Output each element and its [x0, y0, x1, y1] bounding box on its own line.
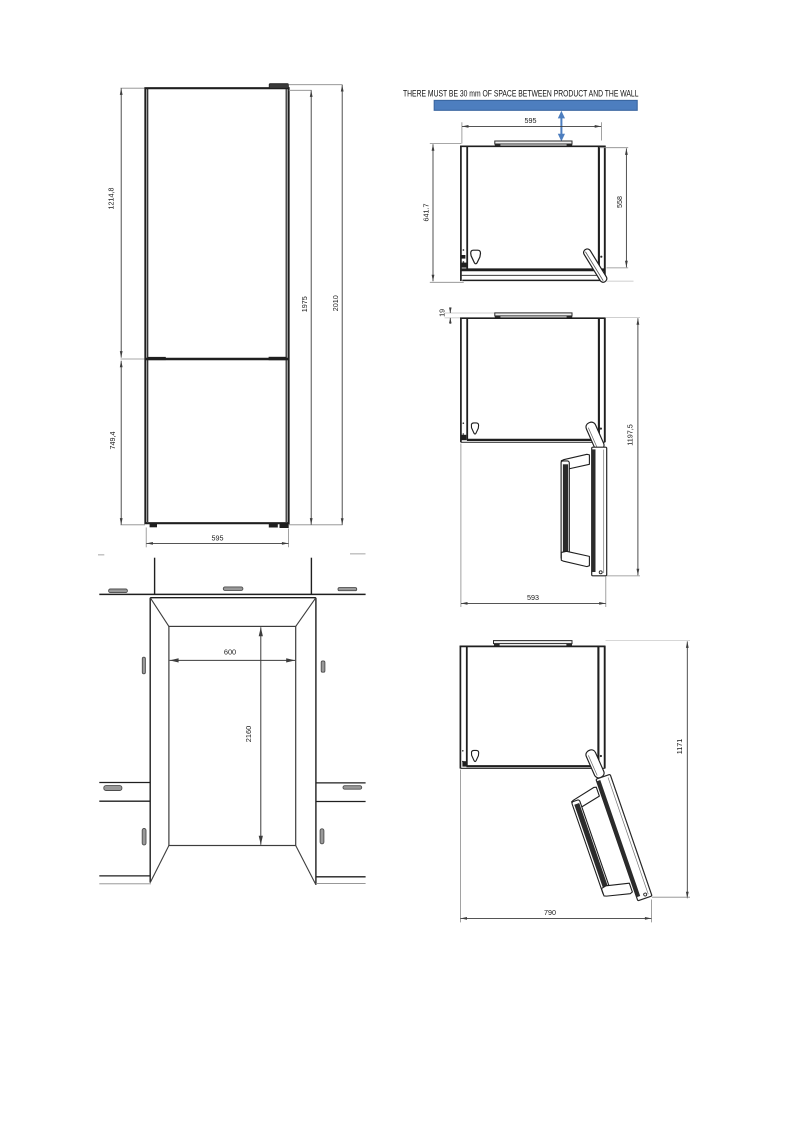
svg-text:593: 593 [527, 593, 539, 602]
svg-text:1214,8: 1214,8 [107, 188, 116, 210]
svg-text:1171: 1171 [675, 739, 684, 754]
svg-text:1197,5: 1197,5 [626, 424, 635, 445]
svg-text:19: 19 [438, 309, 447, 317]
svg-text:2010: 2010 [331, 295, 340, 311]
svg-text:595: 595 [525, 116, 537, 125]
svg-text:790: 790 [544, 908, 556, 917]
svg-text:595: 595 [212, 533, 224, 542]
svg-text:THERE MUST BE 30 mm OF SPACE B: THERE MUST BE 30 mm OF SPACE BETWEEN PRO… [403, 88, 639, 98]
svg-text:2160: 2160 [244, 726, 253, 742]
svg-text:558: 558 [615, 196, 624, 208]
svg-text:749,4: 749,4 [108, 432, 117, 450]
svg-text:600: 600 [224, 647, 236, 656]
svg-text:641.7: 641.7 [422, 204, 431, 222]
svg-text:1975: 1975 [300, 296, 309, 312]
